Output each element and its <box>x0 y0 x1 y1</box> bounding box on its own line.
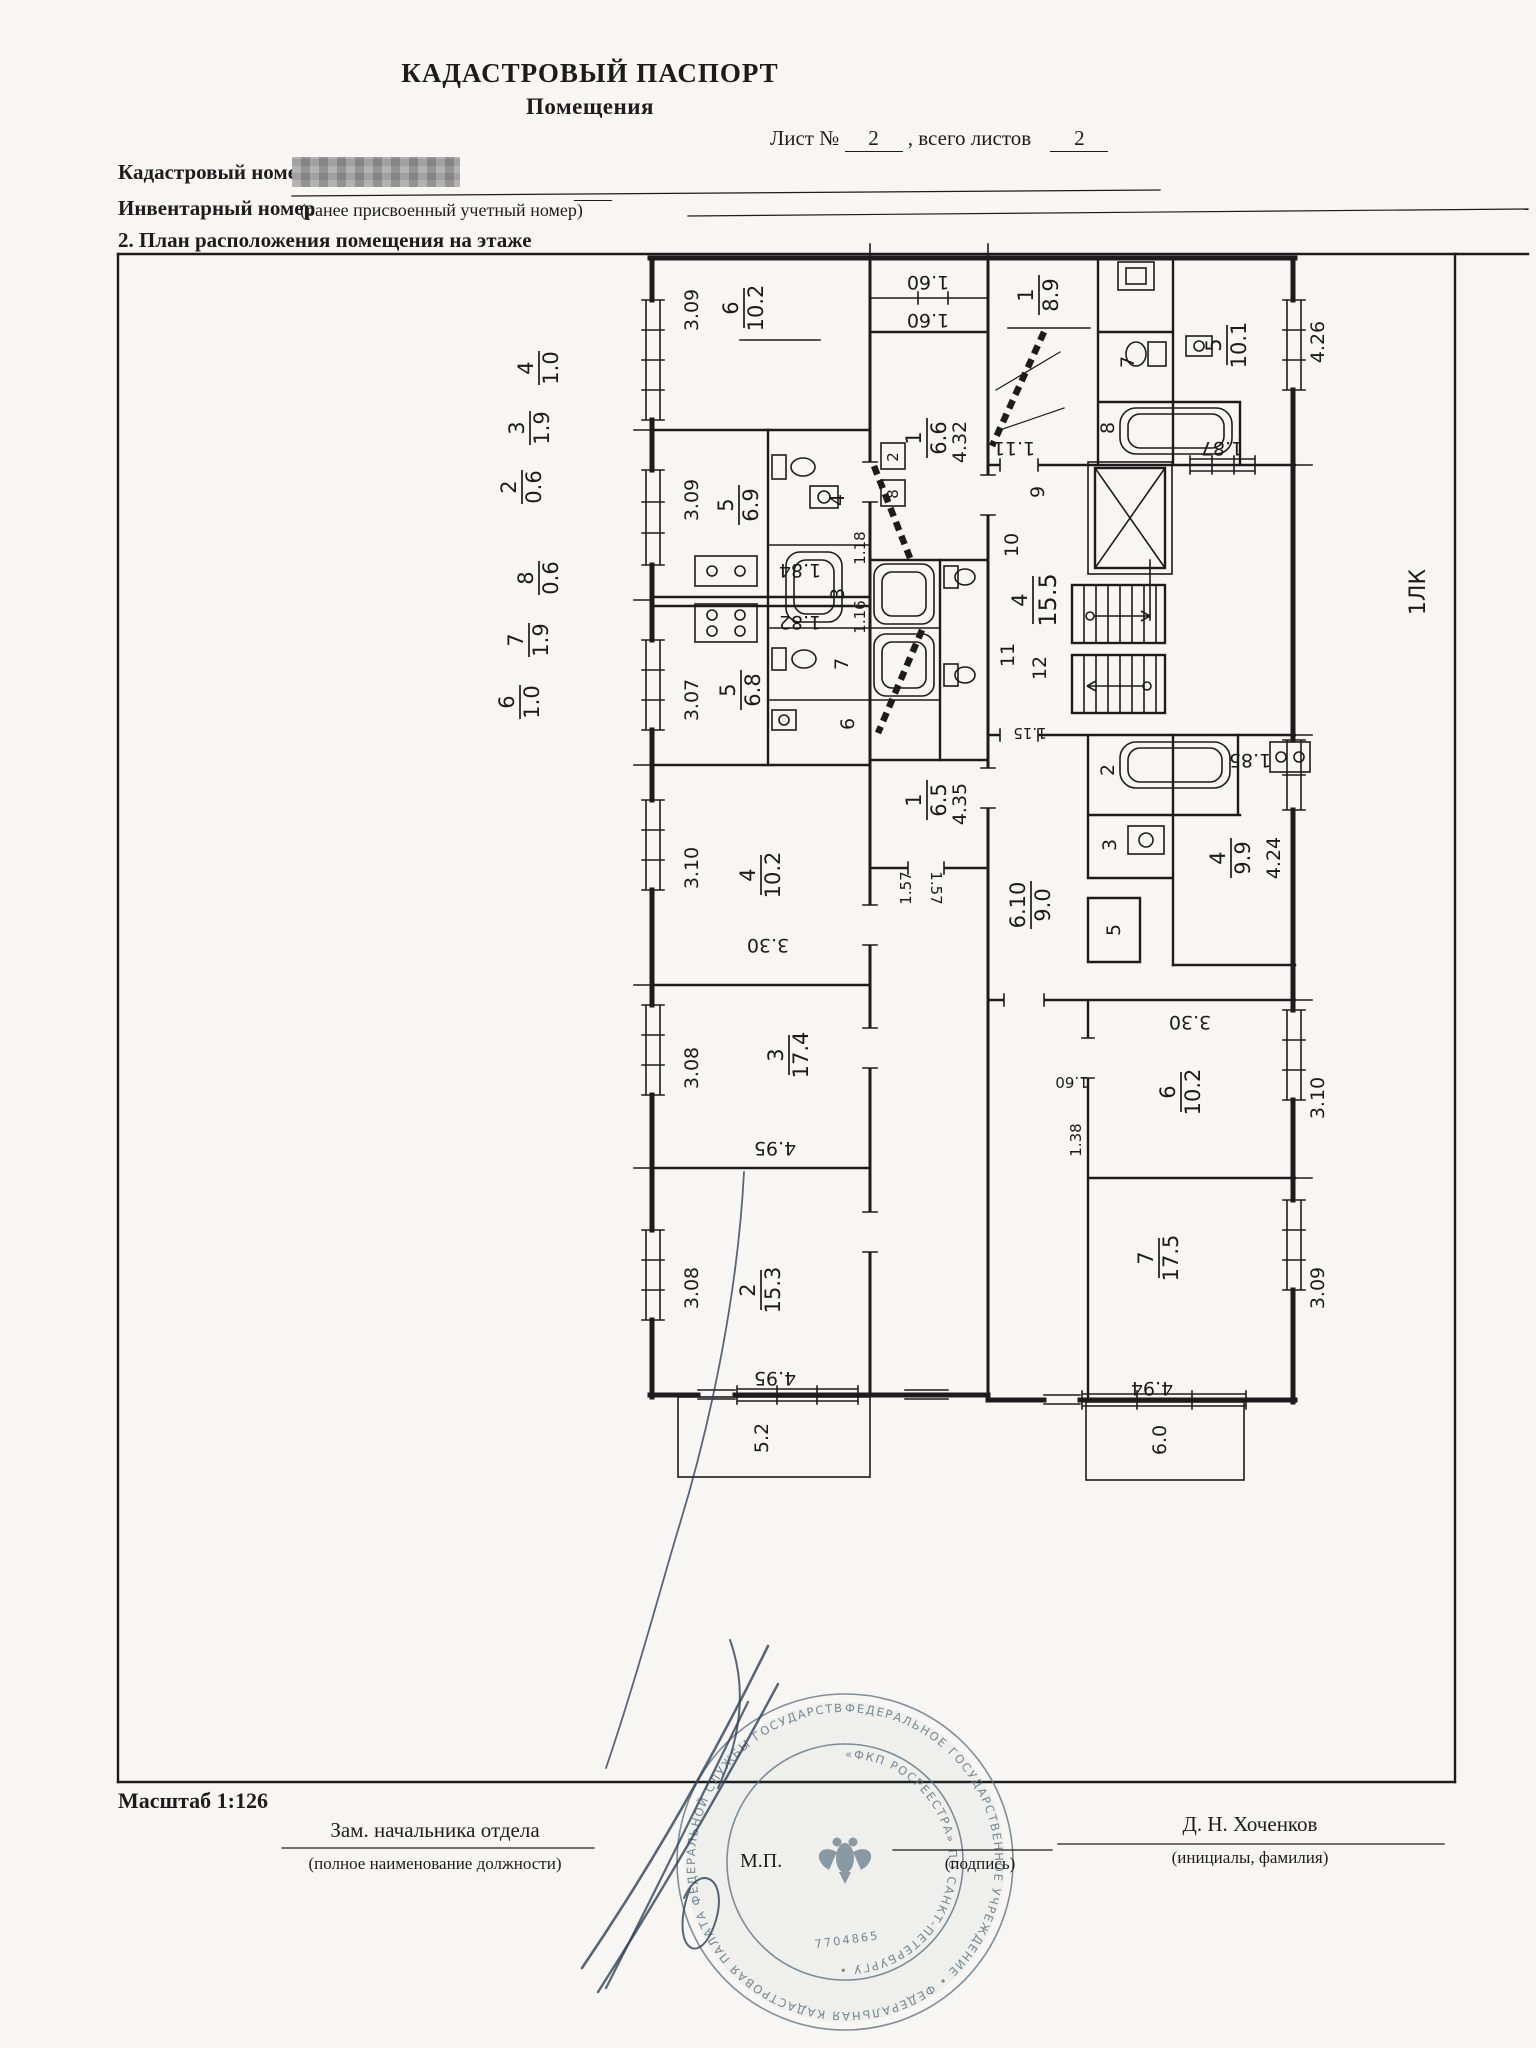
width-dim: 4.95 <box>754 1367 796 1389</box>
toilet-icon <box>944 664 975 686</box>
signature-note: (подпись) <box>900 1854 1060 1874</box>
margin-window-label: 3 1.9 <box>505 411 554 445</box>
hall-dim: 4.35 <box>949 783 971 825</box>
corridor-label: 6.10 9.0 <box>1006 881 1055 929</box>
cadastral-passport-page: КАДАСТРОВЫЙ ПАСПОРТ Помещения Лист № 2 ,… <box>0 0 1536 2048</box>
room-label: 4 10.2 <box>736 852 785 899</box>
svg-text:6: 6 <box>719 301 743 314</box>
room-label: 1 6.5 <box>902 780 951 820</box>
scale-label: Масштаб 1:126 <box>118 1788 268 1814</box>
svg-text:6.6: 6.6 <box>927 421 951 454</box>
door-dim: 1.11 <box>993 437 1035 459</box>
cell-number: 8 <box>884 489 902 499</box>
cell-number: 11 <box>997 643 1019 667</box>
cell-number: 2 <box>1097 764 1119 776</box>
toilet-icon <box>944 566 975 588</box>
svg-text:3: 3 <box>505 421 529 434</box>
room-label: 5 10.1 <box>1202 322 1251 369</box>
cell-number: 6 <box>837 718 859 730</box>
wall-dim: 3.10 <box>1307 1077 1329 1119</box>
room-label: 4 9.9 <box>1206 838 1255 878</box>
margin-window-label: 4 1.0 <box>514 351 563 385</box>
svg-text:4: 4 <box>736 868 760 881</box>
signatory-name: Д. Н. Хоченков <box>1055 1812 1445 1837</box>
svg-text:17.5: 17.5 <box>1159 1235 1183 1282</box>
wall-dim: 1.38 <box>1067 1123 1085 1156</box>
cell-number: 3 <box>827 588 849 600</box>
staircase <box>1072 585 1165 713</box>
balcony-dim: 6.0 <box>1149 1425 1171 1455</box>
svg-text:1.0: 1.0 <box>520 685 544 718</box>
svg-text:1.0: 1.0 <box>539 351 563 384</box>
hall-dim: 4.32 <box>949 421 971 463</box>
position-title: Зам. начальника отдела <box>260 1818 610 1843</box>
svg-text:10.2: 10.2 <box>744 285 768 332</box>
cell-number: 10 <box>1001 533 1023 557</box>
wall-dim: 4.26 <box>1307 321 1329 363</box>
wall-dim: 3.08 <box>681 1267 703 1309</box>
svg-text:2: 2 <box>736 1283 760 1296</box>
svg-text:4: 4 <box>514 361 538 374</box>
door-dim: 1.15 <box>1013 724 1046 742</box>
door-dim: 1.57 <box>927 871 945 904</box>
window-dim: 1.85 <box>1229 749 1271 771</box>
svg-text:10.2: 10.2 <box>761 852 785 899</box>
sink-icon <box>772 710 796 730</box>
width-dim: 3.30 <box>747 934 789 956</box>
closet-dim: 1.60 <box>907 271 949 293</box>
cell-number: 8 <box>1097 422 1119 434</box>
stove-dim: 1.82 <box>779 611 821 633</box>
width-dim: 4.95 <box>754 1137 796 1159</box>
margin-window-label: 7 1.9 <box>504 623 553 657</box>
balcony-dim: 5.2 <box>751 1423 773 1453</box>
toilet-icon <box>772 455 815 479</box>
svg-text:10.1: 10.1 <box>1227 322 1251 369</box>
dimension-ticks <box>634 244 1312 1178</box>
svg-text:10.2: 10.2 <box>1181 1069 1205 1116</box>
room-label: 3 17.4 <box>764 1032 813 1079</box>
svg-text:1: 1 <box>902 793 926 806</box>
room-label: 6 10.2 <box>719 285 768 332</box>
plan-frame <box>118 254 1528 1782</box>
svg-text:9.0: 9.0 <box>1031 888 1055 921</box>
room-label: 7 17.5 <box>1134 1235 1183 1282</box>
stair-block-label: 1ЛК <box>1406 569 1431 616</box>
room-label: 1 8.9 <box>1014 275 1063 315</box>
svg-text:15.5: 15.5 <box>1034 573 1062 626</box>
stove-icon <box>695 604 757 642</box>
cell-number: 3 <box>1099 839 1121 851</box>
wall-dim: 3.07 <box>681 679 703 721</box>
stove-icon <box>1270 742 1310 772</box>
svg-text:6: 6 <box>1156 1085 1180 1098</box>
svg-text:8: 8 <box>514 571 538 584</box>
cell-dim: 1.18 <box>851 531 869 564</box>
margin-window-label: 2 0.6 <box>497 470 546 504</box>
bathtub-icon <box>874 634 934 696</box>
cell-number: 5 <box>1103 924 1125 936</box>
svg-text:17.4: 17.4 <box>789 1032 813 1079</box>
official-stamp: ФЕДЕРАЛЬНОЕ ГОСУДАРСТВЕННОЕ УЧРЕЖДЕНИЕ •… <box>0 0 1013 2030</box>
svg-text:9.9: 9.9 <box>1231 841 1255 874</box>
closet-dim: 1.60 <box>907 309 949 331</box>
width-dim: 4.94 <box>1131 1377 1173 1399</box>
svg-text:1: 1 <box>902 431 926 444</box>
svg-text:1.9: 1.9 <box>530 411 554 444</box>
room-label: 5 6.8 <box>716 670 765 710</box>
stamp-place-label: М.П. <box>740 1850 782 1873</box>
svg-text:8.9: 8.9 <box>1039 278 1063 311</box>
wall-dim: 3.09 <box>1307 1267 1329 1309</box>
svg-text:1.9: 1.9 <box>529 623 553 656</box>
svg-text:6.9: 6.9 <box>739 488 763 521</box>
margin-window-label: 8 0.6 <box>514 561 563 595</box>
svg-text:4: 4 <box>1206 851 1230 864</box>
stove-dim: 1.84 <box>779 559 821 581</box>
bathtub-icon <box>1120 742 1230 788</box>
sink-icon <box>1128 826 1164 854</box>
cell-dim: 1.16 <box>851 600 869 633</box>
svg-text:0.6: 0.6 <box>522 470 546 503</box>
signatory-note: (инициалы, фамилия) <box>1055 1848 1445 1868</box>
svg-text:0.6: 0.6 <box>539 561 563 594</box>
stairhall-label: 4 15.5 <box>1008 573 1062 626</box>
svg-text:6.8: 6.8 <box>741 673 765 706</box>
cell-number: 2 <box>884 452 902 462</box>
width-dim: 3.30 <box>1169 1011 1211 1033</box>
cell-number: 4 <box>827 494 849 506</box>
room-label: 2 15.3 <box>736 1267 785 1314</box>
svg-text:2: 2 <box>497 480 521 493</box>
cell-number: 7 <box>1117 356 1139 368</box>
svg-text:4: 4 <box>1008 593 1032 606</box>
svg-text:5: 5 <box>716 683 740 696</box>
sink-icon <box>1118 262 1154 290</box>
svg-text:6.10: 6.10 <box>1006 882 1030 929</box>
building-walls <box>650 258 1295 1402</box>
svg-text:5: 5 <box>714 498 738 511</box>
svg-text:7: 7 <box>1134 1251 1158 1264</box>
room-label: 6 10.2 <box>1156 1069 1205 1116</box>
wall-dim: 3.08 <box>681 1047 703 1089</box>
svg-text:1: 1 <box>1014 288 1038 301</box>
window-dim: 1.87 <box>1201 437 1243 459</box>
wall-dim: 3.09 <box>681 479 703 521</box>
cell-number: 9 <box>1027 486 1049 498</box>
wall-dim: 3.10 <box>681 847 703 889</box>
wall-dim: 3.09 <box>681 289 703 331</box>
stove-icon <box>695 556 757 586</box>
svg-text:3: 3 <box>764 1048 788 1061</box>
floor-plan-canvas: 4 1.0 3 1.9 2 0.6 8 0.6 7 1.9 6 1.0 <box>0 0 1536 2048</box>
cell-number: 12 <box>1029 656 1051 680</box>
svg-text:15.3: 15.3 <box>761 1267 785 1314</box>
room-label: 5 6.9 <box>714 485 763 525</box>
bathtub-icon <box>874 564 934 624</box>
svg-text:7: 7 <box>504 633 528 646</box>
position-note: (полное наименование должности) <box>255 1854 615 1874</box>
svg-text:6.5: 6.5 <box>927 783 951 816</box>
room-label: 1 6.6 <box>902 418 951 458</box>
svg-text:6: 6 <box>495 695 519 708</box>
header-rules <box>292 190 1528 216</box>
door-dim: 1.60 <box>1055 1073 1088 1091</box>
wall-dim: 4.24 <box>1263 837 1285 879</box>
cell-number: 7 <box>831 658 853 670</box>
margin-window-label: 6 1.0 <box>495 685 544 719</box>
door-dim: 1.57 <box>897 871 915 904</box>
svg-text:5: 5 <box>1202 338 1226 351</box>
toilet-icon <box>772 648 816 670</box>
